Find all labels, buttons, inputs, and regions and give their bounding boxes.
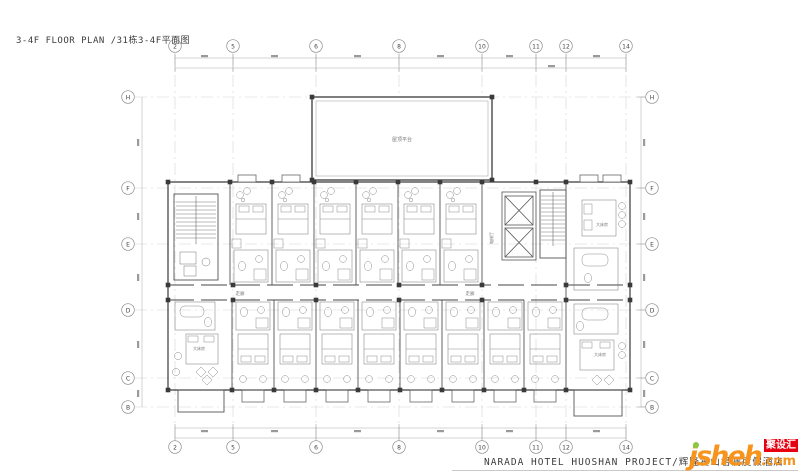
- svg-text:B: B: [126, 404, 130, 411]
- grid-bubbles-columns-top: 2 5 6 8 10 11 12 14: [169, 40, 633, 53]
- svg-text:走廊: 走廊: [236, 290, 245, 297]
- svg-text:14: 14: [622, 43, 630, 50]
- svg-text:大床房: 大床房: [193, 345, 205, 351]
- grid-bubbles-rows-left: H F E D C B: [122, 91, 135, 414]
- svg-text:5: 5: [231, 444, 235, 451]
- stair-right: [540, 190, 566, 258]
- svg-text:屋顶平台: 屋顶平台: [392, 136, 412, 143]
- svg-text:14: 14: [622, 444, 630, 451]
- roof-terrace: 屋顶平台: [312, 97, 492, 180]
- logo-tag-badge: 聚设汇: [764, 439, 798, 452]
- svg-text:8: 8: [397, 444, 401, 451]
- svg-text:2: 2: [173, 444, 177, 451]
- drawing-title: 3-4F FLOOR PLAN /31栋3-4F平面图: [16, 33, 190, 46]
- logo-name: jsheh: [689, 441, 761, 472]
- jsheh-watermark-logo: jsheh.com 聚设汇: [689, 440, 796, 476]
- svg-text:10: 10: [478, 43, 486, 50]
- svg-text:E: E: [650, 241, 654, 248]
- svg-text:C: C: [126, 375, 130, 382]
- svg-text:F: F: [650, 185, 654, 192]
- svg-text:大床房: 大床房: [594, 351, 606, 357]
- stair-left: [174, 194, 218, 280]
- floor-plan: 2 5 6 8 10 11 12 14 2 5 6 8 10 11 12 14 …: [0, 0, 800, 476]
- elevator-core: 电梯厅: [488, 192, 536, 260]
- svg-text:12: 12: [562, 43, 570, 50]
- svg-text:D: D: [650, 307, 655, 314]
- suite-lower-left: 大床房: [172, 302, 224, 412]
- svg-text:11: 11: [532, 444, 540, 451]
- svg-text:走廊: 走廊: [466, 290, 475, 297]
- logo-tld: .com: [761, 454, 796, 469]
- svg-text:H: H: [126, 94, 131, 101]
- svg-text:F: F: [126, 185, 130, 192]
- upper-guest-rooms: [230, 182, 482, 285]
- svg-text:5: 5: [231, 43, 235, 50]
- svg-text:12: 12: [562, 444, 570, 451]
- grid-bubbles-columns-bottom: 2 5 6 8 10 11 12 14: [169, 441, 633, 454]
- svg-text:11: 11: [532, 43, 540, 50]
- svg-text:C: C: [650, 375, 654, 382]
- svg-text:E: E: [126, 241, 130, 248]
- svg-text:6: 6: [314, 43, 318, 50]
- svg-text:H: H: [650, 94, 655, 101]
- svg-text:大床房: 大床房: [596, 221, 608, 227]
- svg-text:10: 10: [478, 444, 486, 451]
- svg-text:8: 8: [397, 43, 401, 50]
- svg-text:6: 6: [314, 444, 318, 451]
- svg-text:电梯厅: 电梯厅: [488, 232, 494, 244]
- suite-upper-right: 大床房: [566, 182, 625, 300]
- drawing-sheet: 3-4F FLOOR PLAN /31栋3-4F平面图: [0, 0, 800, 476]
- logo-leaf-icon: [693, 442, 699, 448]
- svg-text:B: B: [650, 404, 654, 411]
- svg-text:D: D: [126, 307, 131, 314]
- grid-bubbles-rows-right: H F E D C B: [646, 91, 659, 414]
- suite-lower-right: 大床房: [574, 304, 625, 416]
